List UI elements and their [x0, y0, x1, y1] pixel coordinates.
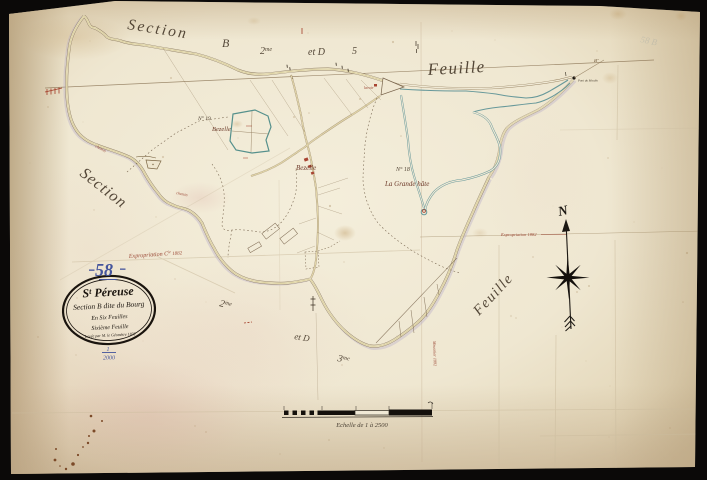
svg-text:Bezelle: Bezelle — [212, 126, 231, 133]
svg-text:2000: 2000 — [103, 356, 115, 362]
svg-text:B: B — [222, 36, 230, 50]
svg-text:Bezelle: Bezelle — [296, 164, 316, 172]
svg-text:58: 58 — [95, 260, 113, 280]
svg-text:Expropriation 1882: Expropriation 1882 — [500, 232, 537, 237]
svg-text:Echelle de 1 à 2500: Echelle de 1 à 2500 — [335, 422, 388, 429]
svg-text:lavoir: lavoir — [364, 85, 374, 90]
svg-text:Pont du Moulin: Pont du Moulin — [577, 79, 598, 83]
svg-text:et D: et D — [308, 47, 326, 58]
svg-text:Feuille: Feuille — [426, 57, 486, 79]
svg-text:Meusnier 1882: Meusnier 1882 — [432, 340, 438, 366]
svg-text:N° 18: N° 18 — [395, 166, 410, 173]
svg-text:La Grande hâte: La Grande hâte — [384, 180, 429, 188]
svg-text:5: 5 — [352, 46, 357, 57]
svg-text:B°: B° — [594, 59, 599, 64]
svg-text:N° 19: N° 19 — [197, 115, 211, 122]
